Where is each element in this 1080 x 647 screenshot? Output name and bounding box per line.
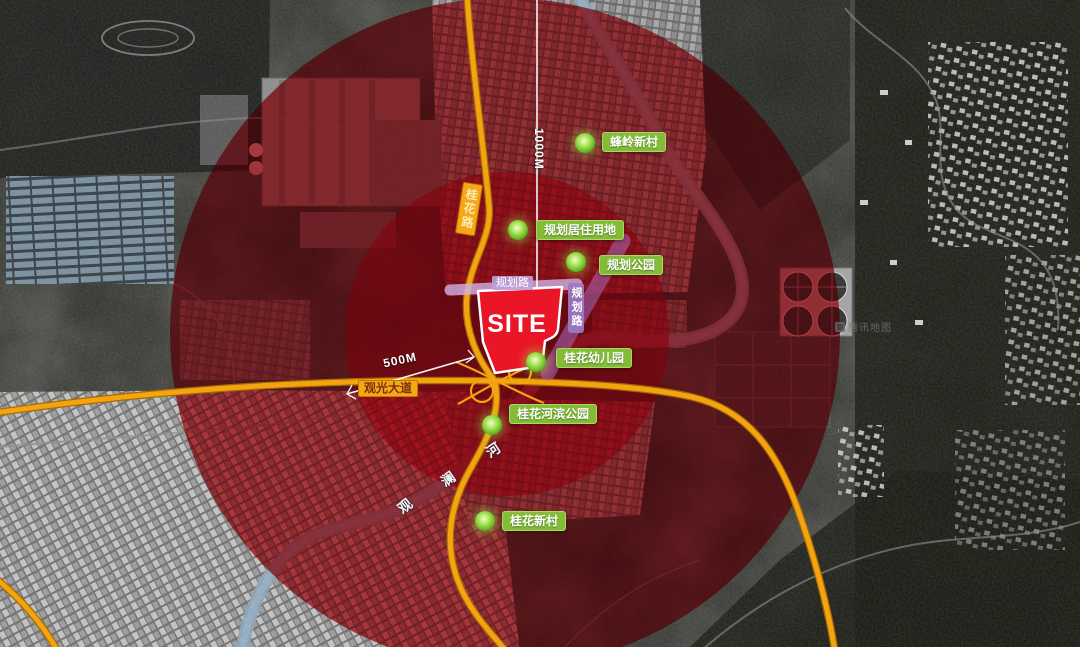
poi-dot: [508, 220, 528, 240]
tencent-maps-icon: [835, 322, 845, 332]
watermark-text: 腾讯地图: [848, 319, 892, 334]
map-watermark: 腾讯地图: [835, 319, 892, 334]
distance-marker-1000m: 1000M: [532, 128, 546, 170]
highway-casing: [0, 0, 835, 647]
road-label-guanguang-avenue: 观光大道: [358, 380, 418, 397]
map-container: SITE 蜂岭新村 规划居住用地 规划公园 桂花幼儿园 桂花河滨公园 桂花新村 …: [0, 0, 1080, 647]
highway-guanguang-avenue: [0, 0, 835, 647]
poi-label-guihua-kindergarten: 桂花幼儿园: [556, 348, 632, 368]
planned-road-label-vertical: 规划路: [568, 283, 584, 333]
site-label: SITE: [487, 310, 547, 338]
poi-label-planned-park: 规划公园: [599, 255, 663, 275]
poi-label-guihua-riverside-park: 桂花河滨公园: [509, 404, 597, 424]
poi-dot: [575, 133, 595, 153]
poi-dot: [526, 352, 546, 372]
poi-label-planned-residential: 规划居住用地: [536, 220, 624, 240]
planned-road-label-horizontal: 规划路: [492, 276, 533, 290]
annotation-overlay: SITE: [0, 0, 1080, 647]
poi-dot: [482, 415, 502, 435]
poi-dot: [566, 252, 586, 272]
poi-dot: [475, 511, 495, 531]
poi-label-guihua-new-village: 桂花新村: [502, 511, 566, 531]
poi-label-fengling-new-village: 蜂岭新村: [602, 132, 666, 152]
